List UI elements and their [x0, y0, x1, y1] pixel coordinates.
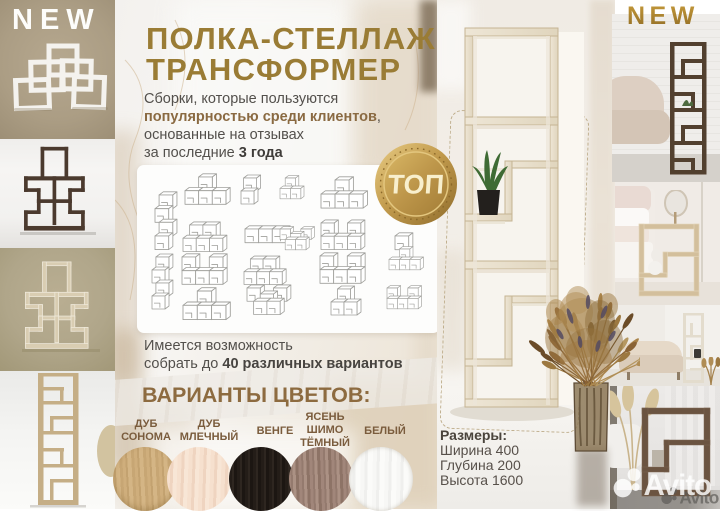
svg-text:Avito: Avito: [644, 469, 711, 499]
svg-text:ТОП: ТОП: [387, 170, 445, 200]
